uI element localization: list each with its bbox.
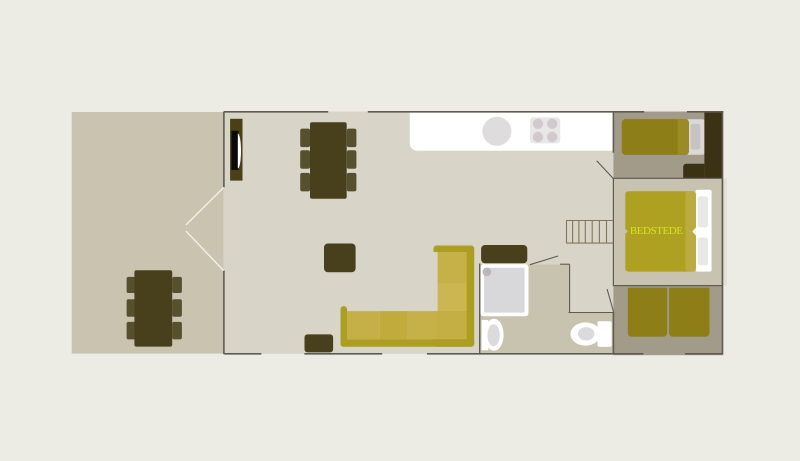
svg-text:BEDSTEDE: BEDSTEDE: [630, 225, 683, 237]
